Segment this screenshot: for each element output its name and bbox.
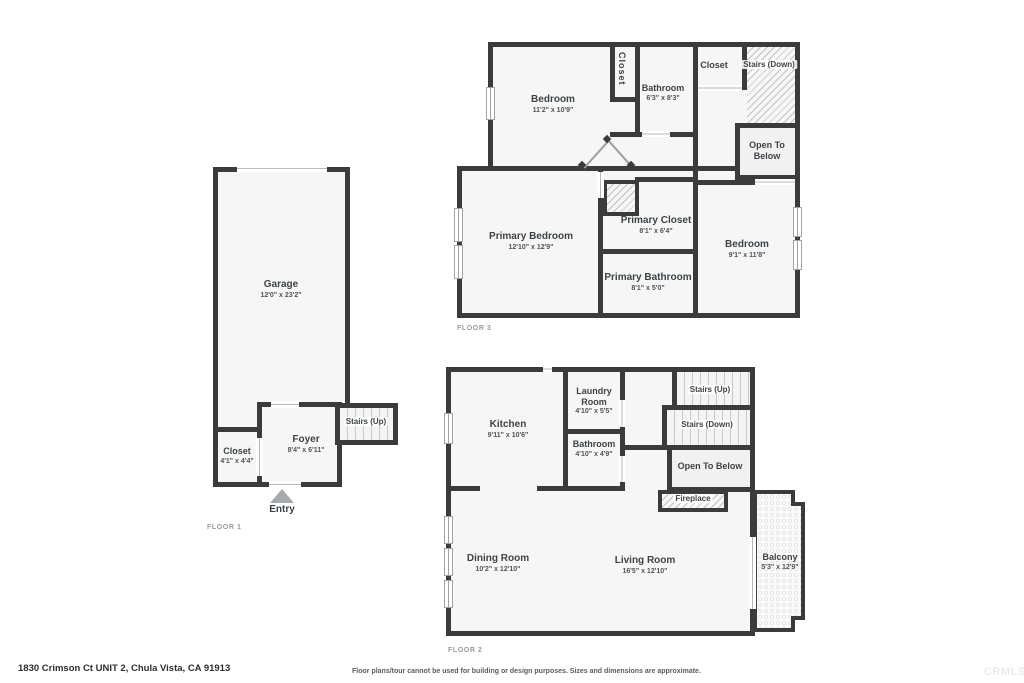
door-opening (698, 85, 742, 91)
room-label-stairs-down-floor2: Stairs (Down) (679, 420, 735, 429)
entry-door-opening (269, 481, 301, 488)
room-label-bathroom-floor3: Bathroom 6'3" x 8'3" (642, 83, 685, 102)
room-label-foyer: Foyer 8'4" x 6'11" (288, 434, 325, 454)
room-label-primary-bathroom: Primary Bathroom 8'1" x 5'0" (604, 272, 691, 292)
room-label-bedroom-top: Bedroom 11'2" x 10'9" (531, 94, 575, 114)
room-label-closet-top: Closet (700, 60, 728, 71)
room-label-fireplace: Fireplace (673, 494, 712, 503)
floor3-tag: FLOOR 3 (457, 325, 492, 332)
window (486, 87, 495, 120)
wall (635, 42, 640, 137)
wall (449, 486, 480, 491)
room-label-garage: Garage 12'0" x 23'2" (260, 279, 301, 299)
room-label-open-below-floor3: Open To Below (742, 140, 792, 161)
window (793, 240, 802, 270)
room-label-primary-bedroom: Primary Bedroom 12'10" x 12'9" (489, 231, 573, 251)
wall (610, 42, 615, 102)
door-opening (642, 131, 670, 137)
window (444, 516, 453, 544)
room-label-stairs-up-floor2: Stairs (Up) (688, 385, 732, 394)
room-label-stairs-up-floor1: Stairs (Up) (344, 417, 388, 426)
door-opening (256, 438, 263, 476)
disclaimer-text: Floor plans/tour cannot be used for buil… (352, 668, 701, 675)
room-label-primary-closet: Primary Closet 8'1" x 6'4" (621, 215, 692, 235)
property-address: 1830 Crimson Ct UNIT 2, Chula Vista, CA … (18, 663, 230, 674)
entry-arrow-icon (270, 489, 294, 503)
room-label-stairs-down-floor3: Stairs (Down) (741, 60, 797, 69)
window (444, 580, 453, 608)
room-label-kitchen: Kitchen 9'11" x 10'6" (488, 419, 529, 439)
balcony-slider-opening (749, 537, 756, 609)
garage-room (213, 167, 350, 432)
door-opening (755, 179, 795, 185)
door-opening (543, 366, 552, 372)
window (793, 207, 802, 237)
window (444, 413, 453, 444)
room-label-closet-floor1: Closet 4'1" x 4'4" (220, 446, 253, 465)
door-opening (619, 400, 625, 427)
wall (563, 429, 625, 434)
balcony-notch (791, 490, 805, 506)
room-label-open-below-floor2: Open To Below (678, 461, 743, 472)
wall (537, 486, 625, 491)
wall (625, 445, 667, 450)
room-label-dining: Dining Room 10'2" x 12'10" (467, 553, 529, 573)
floor-plan-page: { "page": { "address": "1830 Crimson Ct … (0, 0, 1024, 683)
crmls-watermark: CRMLS (984, 666, 1024, 678)
wall (603, 249, 698, 254)
window (454, 245, 463, 279)
room-label-bedroom-right: Bedroom 9'1" x 11'8" (725, 239, 769, 259)
room-label-laundry: Laundry Room 4'10" x 5'5" (569, 386, 619, 415)
stairs-down-hatch (747, 47, 795, 123)
balcony-notch (791, 616, 805, 632)
door-opening (597, 172, 604, 198)
room-label-bathroom-floor2: Bathroom 4'10" x 4'9" (573, 439, 616, 458)
room-label-living: Living Room 16'5" x 12'10" (615, 555, 676, 575)
garage-door-opening (237, 165, 327, 172)
closet-corner-hatch (603, 180, 639, 216)
wall (610, 97, 640, 102)
room-label-balcony: Balcony 5'3" x 12'9" (761, 552, 798, 571)
wall (693, 180, 755, 185)
entry-label: Entry (269, 504, 295, 516)
floor1-tag: FLOOR 1 (207, 524, 242, 531)
door-opening (271, 401, 299, 408)
window (444, 548, 453, 576)
room-label-closet-mid: Closet (617, 52, 627, 86)
wall (635, 177, 698, 182)
window (454, 208, 463, 242)
door-opening (619, 456, 625, 482)
floor2-tag: FLOOR 2 (448, 647, 483, 654)
